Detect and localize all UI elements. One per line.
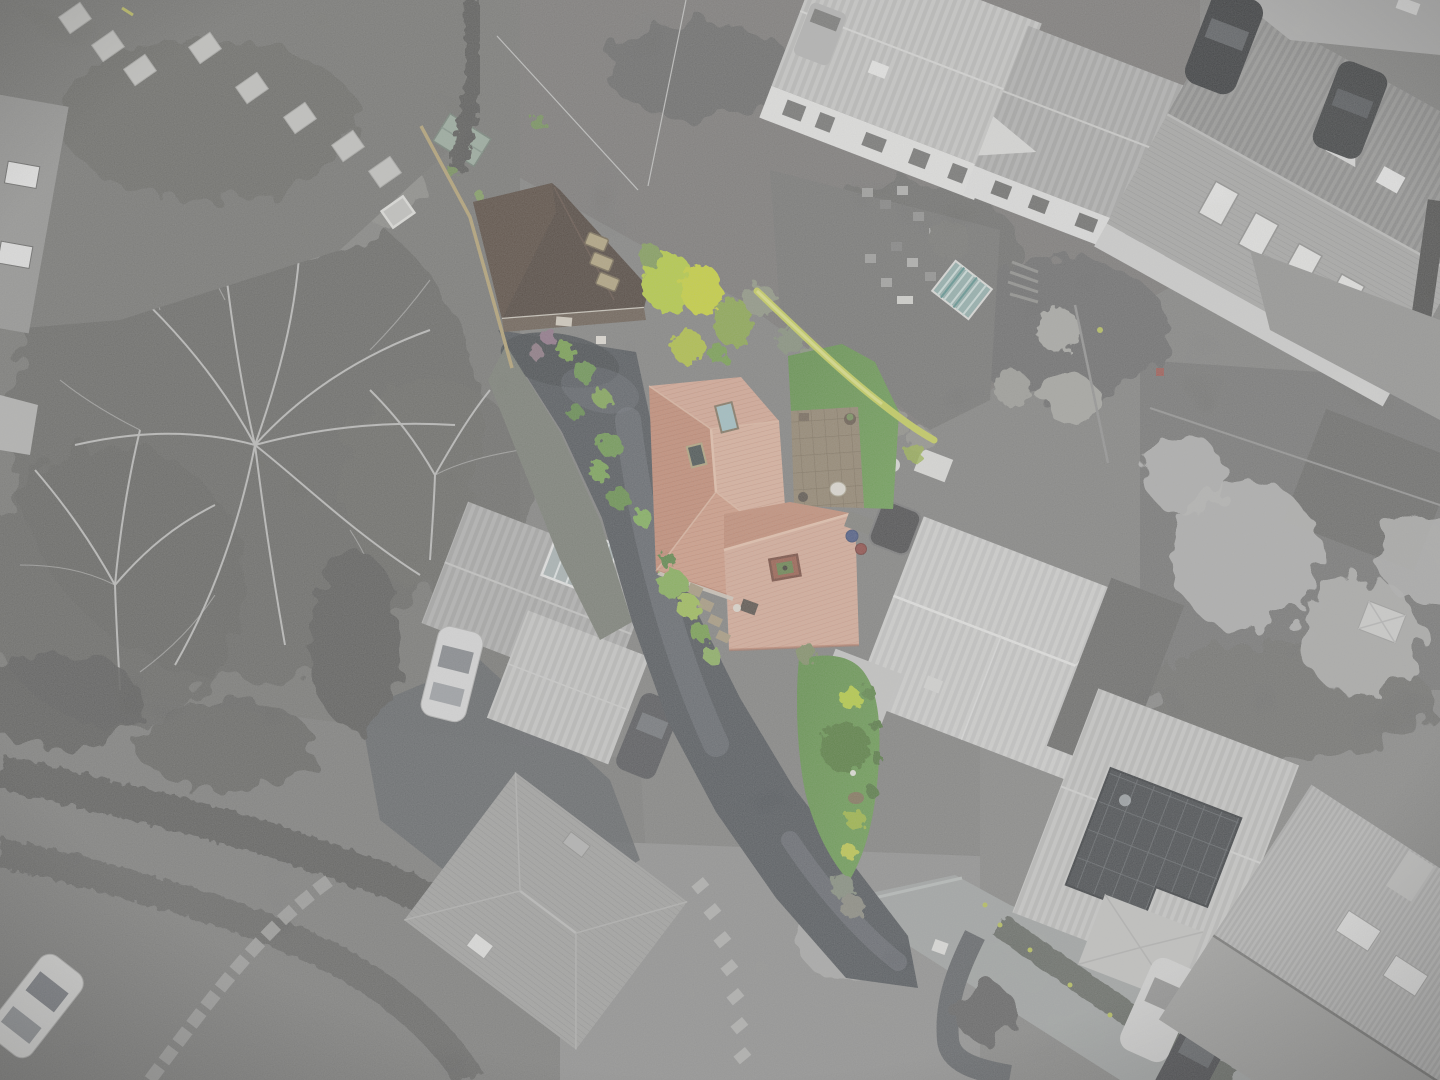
aerial-photo	[0, 0, 1440, 1080]
vignette	[0, 0, 1440, 1080]
